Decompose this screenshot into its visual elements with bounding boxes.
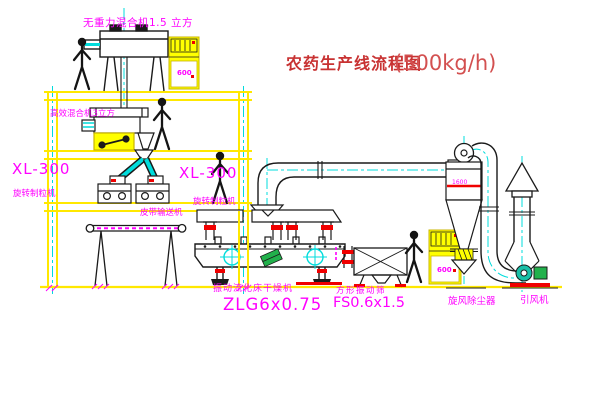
label-sieve-model: FS0.6x1.5 [333, 295, 405, 311]
label-cyclone: 旋风除尘器 [448, 295, 496, 307]
granulator-left [98, 176, 131, 203]
page-title-capacity: (500kg/h) [394, 51, 496, 75]
label-top-mixer: 无重力混合机1.5 立方 [83, 16, 193, 29]
granulator-right [136, 176, 169, 203]
cabinet-top-text: 600 [177, 69, 192, 77]
cabinet-right-text: 600 [437, 266, 452, 274]
label-granulator-right: 旋转制粒机 [193, 196, 236, 207]
label-dryer-model: ZLG6x0.75 [223, 295, 322, 314]
belt-conveyor [86, 225, 186, 290]
label-xl300-left: XL-300 [12, 160, 70, 178]
label-high-mixer: 高效混合机3立方 [50, 108, 115, 119]
worker-figure [406, 231, 422, 282]
label-cyclone-dim: 1600 [452, 179, 467, 186]
square-sieve [342, 246, 407, 287]
fluid-bed-dryer [195, 210, 345, 285]
label-belt-conveyor: 皮带输送机 [140, 207, 183, 218]
induced-draft-fan [502, 265, 558, 288]
label-dryer: 振动流化床干燥机 [213, 282, 293, 294]
label-xl300-right: XL-300 [179, 164, 237, 182]
gravity-mixer [84, 25, 168, 110]
label-granulator-left: 旋转制粒机 [13, 188, 56, 199]
flow-diagram: 600 [0, 0, 600, 403]
diagram-canvas: 600 [0, 0, 600, 403]
label-fan: 引风机 [520, 294, 549, 306]
bucket-elevator-top: 600 [169, 37, 199, 89]
worker-figure [154, 98, 170, 149]
